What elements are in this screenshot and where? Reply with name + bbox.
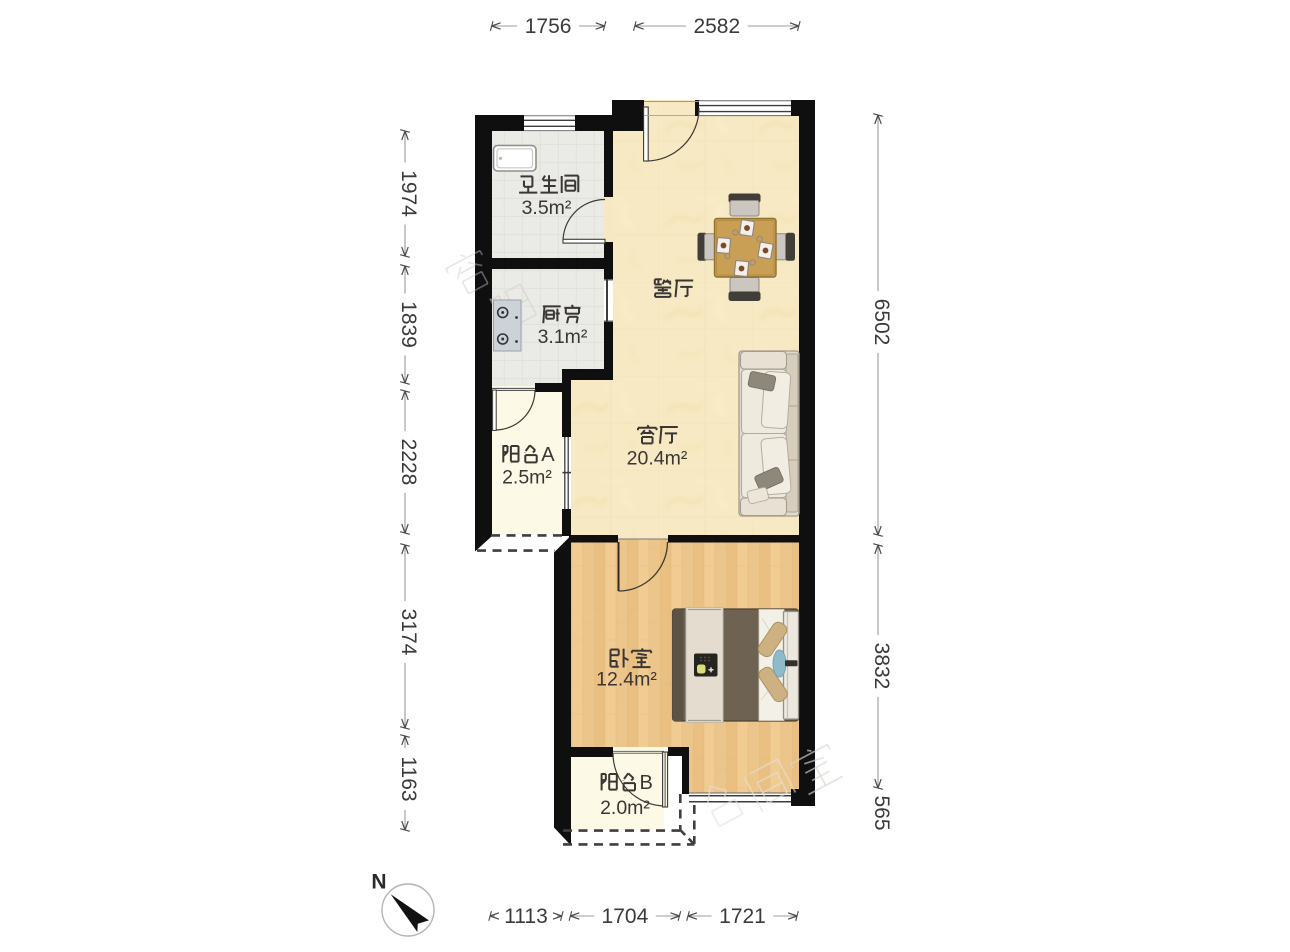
svg-text:20.4m²: 20.4m² [627,448,688,470]
svg-text:2228: 2228 [397,439,420,486]
svg-text:1704: 1704 [602,905,649,928]
svg-text:3174: 3174 [397,609,420,656]
svg-text:6502: 6502 [870,299,893,346]
svg-text:1839: 1839 [397,301,420,348]
svg-text:1974: 1974 [397,170,420,217]
svg-text:2.0m²: 2.0m² [600,797,650,819]
svg-text:1113: 1113 [504,905,548,928]
svg-text:2582: 2582 [693,15,740,38]
svg-text:A: A [541,444,555,466]
svg-text:12.4m²: 12.4m² [596,669,657,691]
svg-text:1163: 1163 [397,756,420,801]
svg-text:B: B [640,772,653,794]
svg-text:1721: 1721 [719,905,766,928]
svg-text:3.1m²: 3.1m² [538,326,588,348]
svg-text:565: 565 [870,795,893,830]
svg-text:1756: 1756 [525,15,572,38]
svg-text:N: N [371,871,386,894]
svg-text:3.5m²: 3.5m² [522,197,572,219]
svg-text:3832: 3832 [870,643,893,690]
svg-text:2.5m²: 2.5m² [502,467,552,489]
